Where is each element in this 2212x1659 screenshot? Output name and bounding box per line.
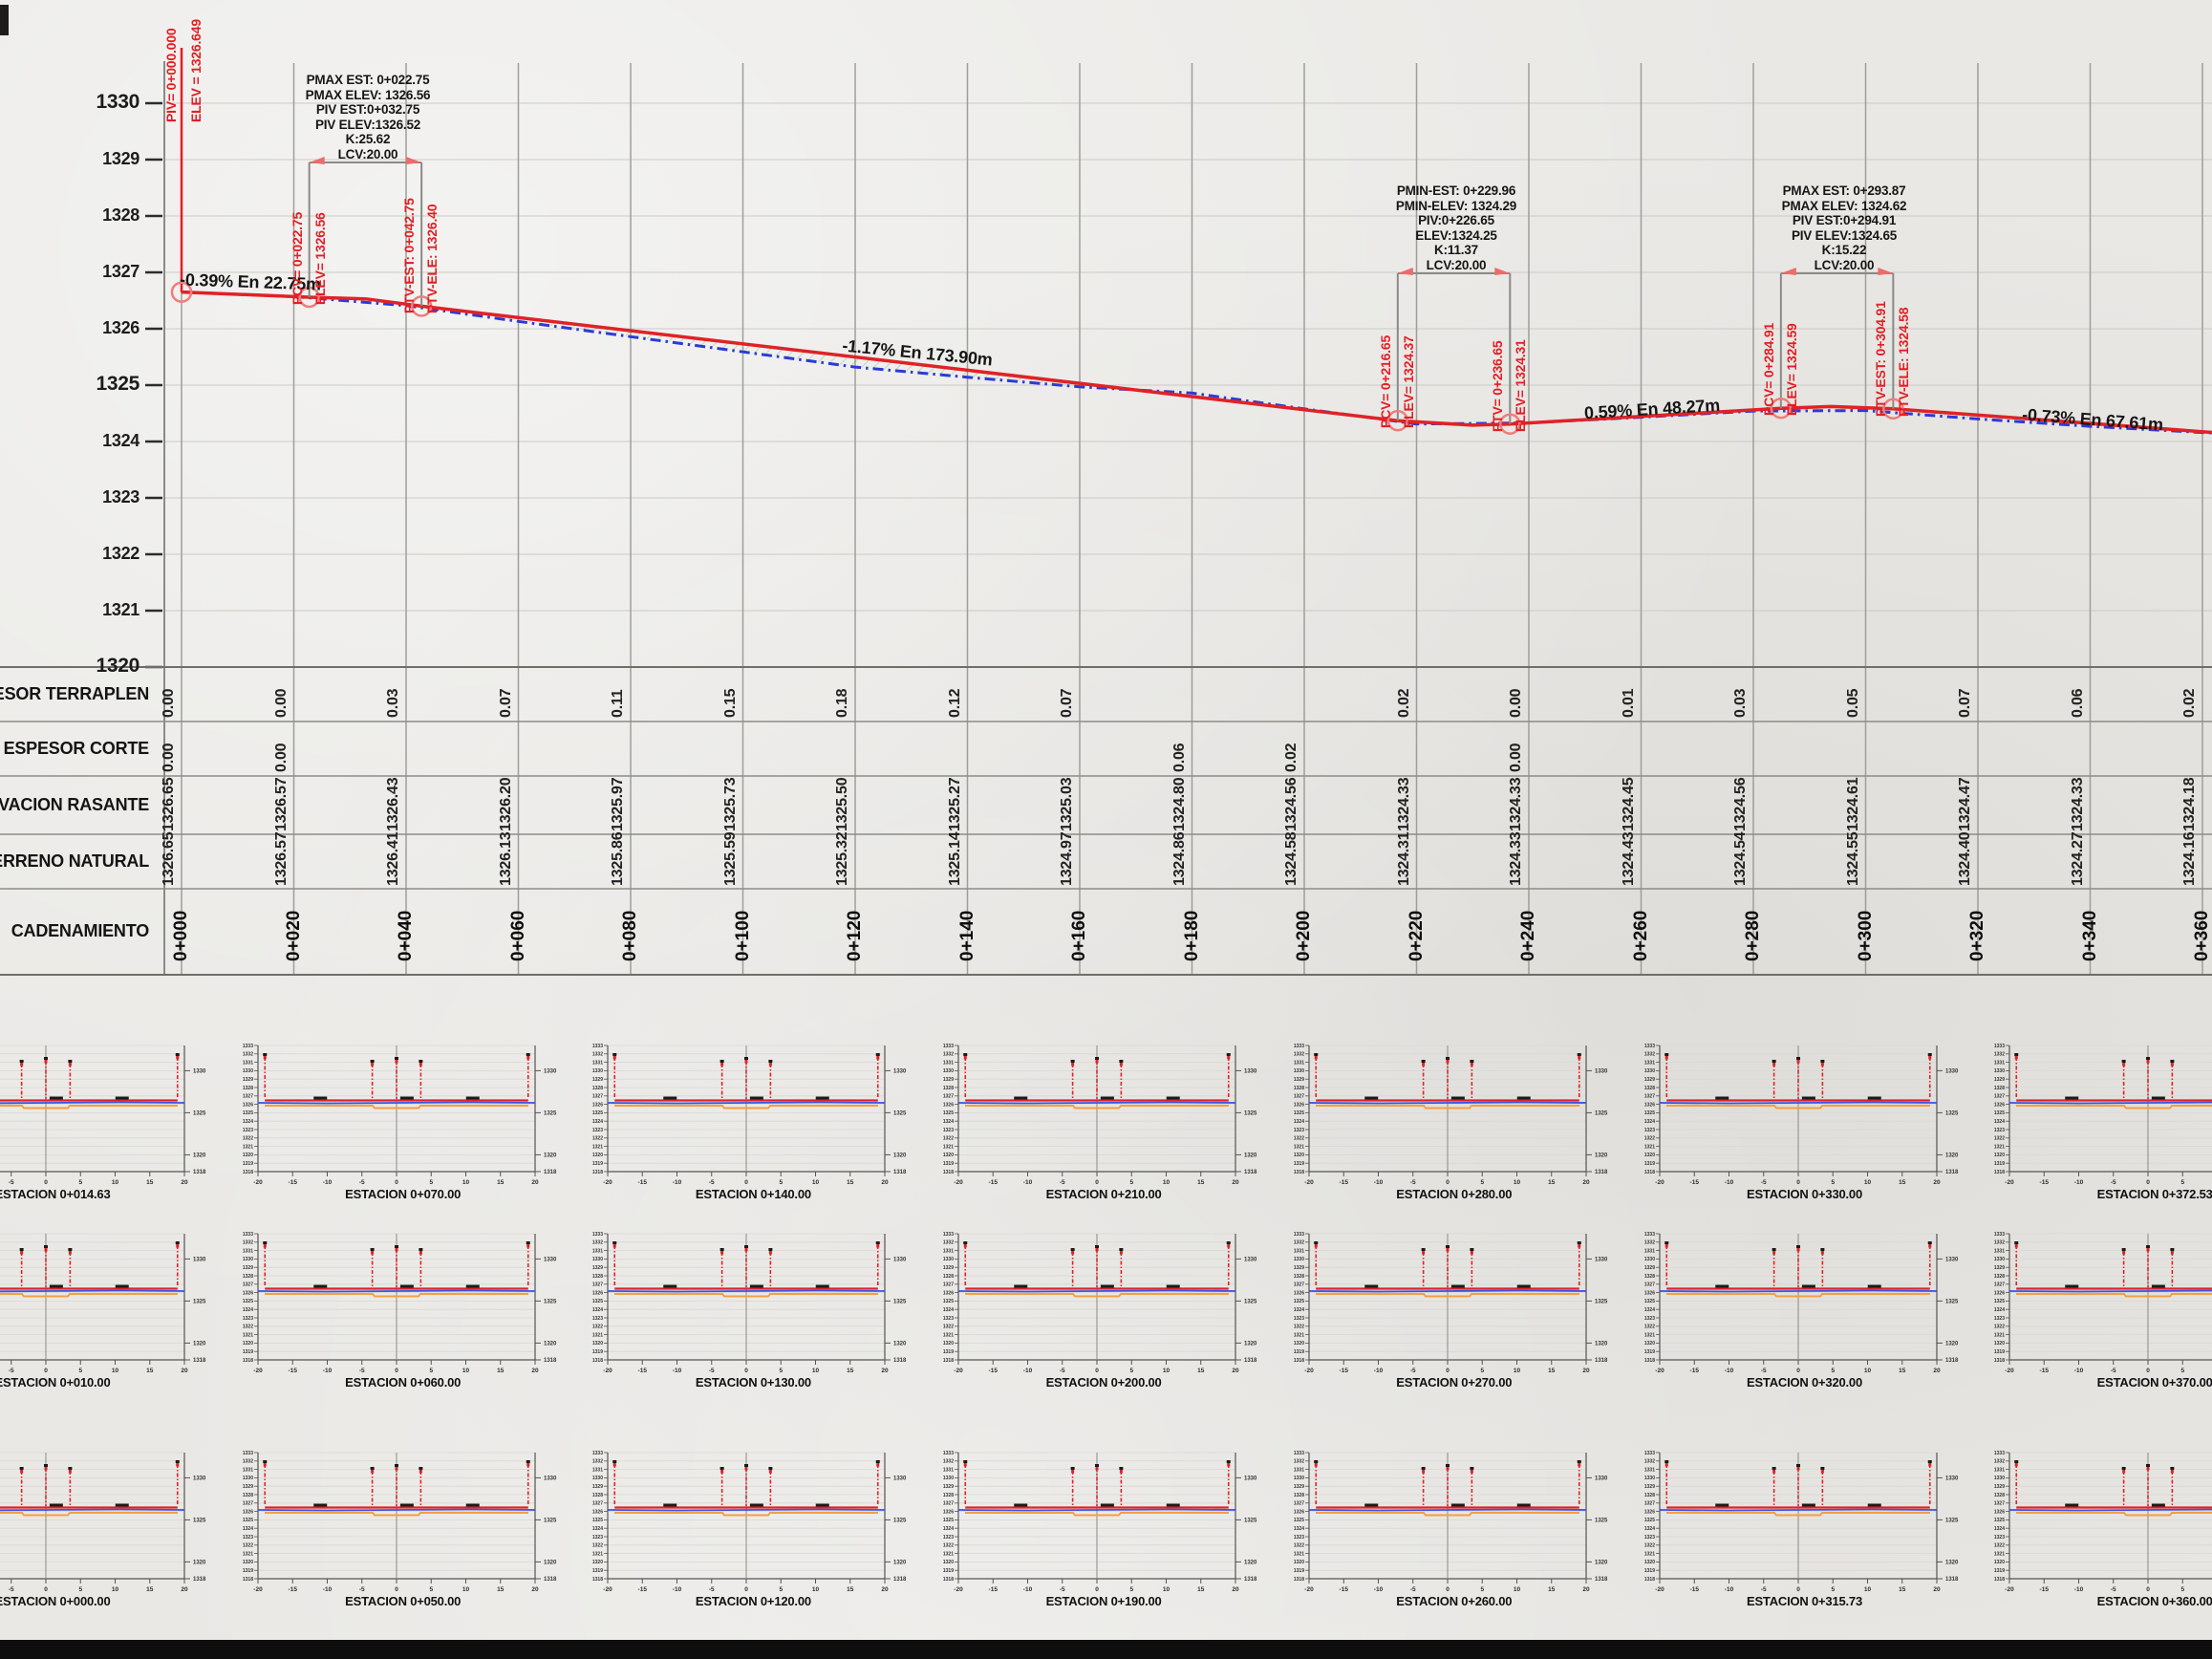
section-y-left-label: 1332 xyxy=(592,1459,603,1465)
table-value: 1325.27 xyxy=(947,778,964,831)
spike-head-icon xyxy=(176,1056,179,1060)
section-x-tick-label: -10 xyxy=(1724,1179,1733,1186)
section-y-left-label: 1329 xyxy=(592,1077,603,1083)
spike-head-icon xyxy=(1772,1470,1775,1474)
section-y-right-label: 1318 xyxy=(1244,1170,1257,1175)
section-grade-bar xyxy=(313,1504,327,1507)
spike-head-icon xyxy=(964,1056,967,1060)
section-y-left-label: 1323 xyxy=(1994,1128,2005,1133)
section-x-tick-label: 0 xyxy=(1446,1586,1450,1593)
section-x-tick-label: 15 xyxy=(497,1586,505,1593)
section-y-right-label: 1318 xyxy=(1595,1577,1608,1583)
section-y-left-label: 1320 xyxy=(592,1153,603,1158)
section-terreno-line xyxy=(0,1103,184,1104)
table-value: 1324.16 xyxy=(2181,832,2199,886)
section-terreno-line xyxy=(958,1291,1235,1292)
spike-head-icon xyxy=(1927,1460,1931,1463)
section-y-left-label: 1319 xyxy=(592,1349,603,1355)
section-y-left-label: 1333 xyxy=(1994,1044,2005,1049)
section-y-right-label: 1325 xyxy=(1595,1111,1608,1117)
section-y-left-label: 1333 xyxy=(592,1044,603,1049)
section-y-left-label: 1331 xyxy=(1294,1467,1304,1473)
cross-section: 1333133213311330132913281327132613251324… xyxy=(0,1226,215,1394)
section-y-left-label: 1327 xyxy=(1994,1282,2005,1288)
table-value: 1324.56 xyxy=(1283,778,1300,831)
section-y-left-label: 1325 xyxy=(1643,1110,1654,1116)
section-y-left-label: 1322 xyxy=(1294,1136,1304,1142)
annotation-line: K:25.62 xyxy=(225,132,511,147)
section-x-tick-label: 5 xyxy=(1480,1368,1484,1374)
spike-head-icon xyxy=(1772,1060,1775,1063)
section-grade-bar xyxy=(1867,1097,1880,1100)
table-value: 1325.50 xyxy=(834,778,851,831)
station-label: 0+240 xyxy=(1518,911,1539,961)
table-value: 1324.27 xyxy=(2070,832,2087,886)
section-y-left-label: 1322 xyxy=(243,1325,253,1330)
spike-head-icon xyxy=(1227,1241,1231,1244)
table-value: 1324.18 xyxy=(2181,778,2199,831)
section-y-left-label: 1331 xyxy=(943,1060,954,1066)
section-x-tick-label: 0 xyxy=(395,1179,398,1186)
section-x-tick-label: -5 xyxy=(9,1368,14,1374)
section-x-tick-label: 0 xyxy=(745,1179,749,1186)
section-x-tick-label: -15 xyxy=(1689,1368,1699,1374)
section-y-left-label: 1325 xyxy=(592,1518,603,1523)
table-value: 1324.61 xyxy=(1845,778,1862,831)
section-y-left-label: 1324 xyxy=(243,1307,253,1313)
section-title: ESTACION 0+320.00 xyxy=(1643,1375,1967,1390)
section-y-left-label: 1325 xyxy=(1294,1518,1304,1523)
spike-head-icon xyxy=(2171,1467,2175,1470)
section-y-left-label: 1322 xyxy=(943,1543,954,1549)
section-grade-bar xyxy=(1801,1097,1815,1100)
section-title: ESTACION 0+270.00 xyxy=(1292,1375,1617,1390)
section-y-right-label: 1325 xyxy=(1244,1300,1257,1305)
section-title: ESTACION 0+372.53 xyxy=(1992,1187,2212,1201)
section-grade-bar xyxy=(400,1097,414,1100)
section-y-left-label: 1332 xyxy=(1643,1052,1654,1058)
spike-head-icon xyxy=(1446,1467,1449,1471)
spike-head-icon xyxy=(45,1467,48,1471)
table-value: 0.15 xyxy=(722,689,740,718)
spike-head-icon xyxy=(263,1241,267,1244)
section-x-tick-label: -10 xyxy=(1724,1368,1733,1374)
section-grade-bar xyxy=(50,1285,63,1288)
section-y-left-label: 1320 xyxy=(943,1341,954,1347)
section-y-left-label: 1333 xyxy=(1994,1451,2005,1456)
section-y-left-label: 1329 xyxy=(1294,1484,1304,1490)
table-value: 1325.97 xyxy=(610,778,627,831)
section-y-left-label: 1329 xyxy=(592,1265,603,1271)
station-label: 0+020 xyxy=(284,911,305,961)
annotation-line: PMIN-EST: 0+229.96 xyxy=(1313,183,1600,199)
section-x-tick-label: 15 xyxy=(146,1586,154,1593)
section-y-left-label: 1325 xyxy=(1994,1299,2005,1304)
section-y-left-label: 1321 xyxy=(592,1332,603,1338)
section-y-right-label: 1320 xyxy=(893,1561,907,1566)
section-y-left-label: 1324 xyxy=(943,1526,954,1532)
section-y-left-label: 1332 xyxy=(1294,1052,1304,1058)
section-y-right-label: 1330 xyxy=(893,1258,907,1263)
ptv-label-line1: PTV-EST: 0+304.91 xyxy=(1873,301,1888,417)
section-subrasante-line xyxy=(0,1513,178,1516)
section-y-left-label: 1328 xyxy=(943,1086,954,1091)
station-label: 0+200 xyxy=(1294,911,1315,961)
cross-section-chart: 1333133213311330132913281327132613251324… xyxy=(241,1038,566,1187)
spike-head-icon xyxy=(1772,1467,1775,1470)
section-y-left-label: 1327 xyxy=(1294,1501,1304,1507)
section-y-left-label: 1331 xyxy=(1294,1248,1304,1254)
table-value: 0.03 xyxy=(1732,689,1750,718)
spike-head-icon xyxy=(769,1467,773,1470)
section-y-left-label: 1327 xyxy=(1643,1501,1654,1507)
section-y-left-label: 1331 xyxy=(592,1248,603,1254)
spike-head-icon xyxy=(2015,1244,2018,1248)
annotation-line: PMAX ELEV: 1326.56 xyxy=(225,88,511,103)
section-x-tick-label: 20 xyxy=(1582,1368,1590,1374)
spike-head-icon xyxy=(263,1463,266,1467)
section-y-right-label: 1330 xyxy=(1945,1069,1959,1075)
spike-head-icon xyxy=(1928,1056,1931,1060)
section-y-left-label: 1328 xyxy=(1643,1086,1654,1091)
section-y-left-label: 1326 xyxy=(1294,1290,1304,1296)
spike-head-icon xyxy=(2146,1057,2150,1060)
spike-head-icon xyxy=(1927,1053,1931,1056)
station-label: 0+100 xyxy=(733,911,754,961)
table-value: 1324.56 xyxy=(1732,778,1750,831)
spike-head-icon xyxy=(769,1248,773,1251)
section-grade-bar xyxy=(750,1097,763,1100)
section-y-left-label: 1330 xyxy=(1643,1257,1654,1262)
section-y-left-label: 1321 xyxy=(1294,1551,1304,1557)
annotation-line: LCV:20.00 xyxy=(1701,258,1987,273)
section-y-right-label: 1318 xyxy=(193,1358,206,1364)
annotation-line: PIV:0+226.65 xyxy=(1313,213,1600,228)
spike-head-icon xyxy=(2146,1464,2150,1467)
spike-head-icon xyxy=(1664,1244,1667,1248)
section-y-right-label: 1330 xyxy=(893,1476,907,1482)
section-x-tick-label: 0 xyxy=(1796,1179,1800,1186)
section-x-tick-label: 5 xyxy=(429,1586,433,1593)
section-x-tick-label: -10 xyxy=(322,1586,332,1593)
section-y-right-label: 1330 xyxy=(193,1258,206,1263)
spike-head-icon xyxy=(68,1248,72,1251)
section-x-tick-label: 15 xyxy=(1197,1586,1205,1593)
section-y-left-label: 1321 xyxy=(1994,1144,2005,1150)
spike-head-icon xyxy=(395,1245,398,1248)
ptv-label-line2: PTV-ELE: 1326.40 xyxy=(424,205,440,313)
section-y-left-label: 1322 xyxy=(1294,1543,1304,1549)
spike-head-icon xyxy=(1071,1251,1074,1255)
section-x-tick-label: -15 xyxy=(1689,1179,1699,1186)
section-grade-bar xyxy=(816,1504,829,1507)
spike-head-icon xyxy=(526,1244,529,1248)
spike-head-icon xyxy=(419,1467,422,1470)
spike-head-icon xyxy=(371,1470,374,1474)
section-x-tick-label: 15 xyxy=(848,1586,855,1593)
section-y-left-label: 1322 xyxy=(592,1543,603,1549)
station-label: 0+220 xyxy=(1407,911,1428,961)
annotation-line: PMAX EST: 0+293.87 xyxy=(1701,183,1987,199)
section-x-tick-label: 0 xyxy=(395,1368,398,1374)
spike-head-icon xyxy=(44,1464,48,1467)
section-grade-bar xyxy=(2152,1285,2165,1288)
section-y-right-label: 1330 xyxy=(1945,1476,1959,1482)
spike-head-icon xyxy=(1314,1241,1318,1244)
section-title: ESTACION 0+280.00 xyxy=(1292,1187,1617,1201)
section-y-left-label: 1322 xyxy=(1294,1325,1304,1330)
spike-head-icon xyxy=(20,1470,23,1474)
spike-head-icon xyxy=(2146,1245,2150,1248)
section-y-left-label: 1326 xyxy=(1643,1102,1654,1108)
section-title: ESTACION 0+050.00 xyxy=(241,1594,566,1608)
section-grade-bar xyxy=(2065,1285,2078,1288)
section-y-left-label: 1324 xyxy=(1643,1307,1654,1313)
section-terreno-line xyxy=(258,1103,535,1104)
section-y-left-label: 1328 xyxy=(592,1086,603,1091)
spike-head-icon xyxy=(2171,1470,2174,1474)
spike-head-icon xyxy=(2122,1467,2126,1470)
pcv-label-line2: ELEV= 1324.37 xyxy=(1401,336,1416,429)
section-y-left-label: 1323 xyxy=(1643,1316,1654,1322)
spike-head-icon xyxy=(68,1060,72,1063)
section-y-left-label: 1327 xyxy=(592,1282,603,1288)
spike-head-icon xyxy=(69,1470,72,1474)
section-y-right-label: 1320 xyxy=(1945,1561,1959,1566)
spike-head-icon xyxy=(877,1463,880,1467)
section-y-left-label: 1330 xyxy=(1294,1068,1304,1074)
vertical-curve-annotation: PMAX EST: 0+022.75PMAX ELEV: 1326.56PIV … xyxy=(225,73,511,162)
section-grade-bar xyxy=(1451,1285,1465,1288)
section-x-tick-label: 15 xyxy=(1899,1179,1906,1186)
table-value: 1325.86 xyxy=(610,832,627,886)
spike-head-icon xyxy=(876,1053,880,1056)
spike-head-icon xyxy=(2171,1060,2175,1063)
section-y-left-label: 1328 xyxy=(243,1493,253,1498)
section-y-left-label: 1318 xyxy=(943,1577,954,1583)
section-y-left-label: 1332 xyxy=(592,1240,603,1246)
section-y-left-label: 1331 xyxy=(592,1467,603,1473)
spike-head-icon xyxy=(613,1053,617,1056)
section-y-left-label: 1329 xyxy=(243,1077,253,1083)
spike-head-icon xyxy=(2015,1463,2018,1467)
spike-head-icon xyxy=(69,1063,72,1066)
table-value: 0.00 xyxy=(1508,689,1525,718)
section-y-left-label: 1320 xyxy=(1643,1560,1654,1565)
spike-head-icon xyxy=(1421,1467,1425,1470)
spike-head-icon xyxy=(1820,1063,1823,1066)
spike-head-icon xyxy=(1578,1241,1581,1244)
station-label: 0+080 xyxy=(620,911,641,961)
section-y-right-label: 1320 xyxy=(893,1153,907,1159)
section-y-left-label: 1328 xyxy=(1294,1274,1304,1280)
table-value: 0.18 xyxy=(834,689,851,718)
section-x-tick-label: -20 xyxy=(1655,1586,1664,1593)
section-title: ESTACION 0+360.00 xyxy=(1992,1594,2212,1608)
section-y-left-label: 1319 xyxy=(592,1568,603,1574)
section-y-left-label: 1322 xyxy=(1994,1136,2005,1142)
section-x-tick-label: -20 xyxy=(1655,1368,1664,1374)
spike-head-icon xyxy=(613,1244,616,1248)
cross-section: 1333133213311330132913281327132613251324… xyxy=(1292,1445,1617,1613)
section-y-left-label: 1319 xyxy=(1994,1568,2005,1574)
section-y-left-label: 1333 xyxy=(943,1232,954,1238)
section-y-left-label: 1320 xyxy=(243,1153,253,1158)
section-y-left-label: 1332 xyxy=(943,1052,954,1058)
piv-station-label: PIV= 0+000.000 xyxy=(163,29,179,122)
annotation-line: ELEV:1324.25 xyxy=(1313,228,1600,244)
section-grade-bar xyxy=(2065,1097,2078,1100)
spike-head-icon xyxy=(1421,1060,1425,1063)
spike-head-icon xyxy=(419,1063,422,1066)
spike-head-icon xyxy=(720,1060,724,1063)
cross-section-chart: 1333133213311330132913281327132613251324… xyxy=(241,1445,566,1594)
section-grade-bar xyxy=(2152,1504,2165,1507)
spike-head-icon xyxy=(20,1467,24,1470)
sheet-bottom-bar xyxy=(0,1640,2212,1659)
spike-head-icon xyxy=(1664,1463,1667,1467)
spike-head-icon xyxy=(2122,1470,2125,1474)
section-y-right-label: 1320 xyxy=(1244,1153,1257,1159)
section-x-tick-label: 15 xyxy=(1899,1368,1906,1374)
ptv-label-line1: PTV= 0+236.65 xyxy=(1490,340,1505,431)
table-value: 1326.57 xyxy=(273,778,290,831)
section-x-tick-label: -5 xyxy=(1410,1368,1416,1374)
spike-head-icon xyxy=(176,1460,180,1463)
cross-section: 1333133213311330132913281327132613251324… xyxy=(241,1445,566,1613)
annotation-line: LCV:20.00 xyxy=(225,147,511,162)
section-y-right-label: 1330 xyxy=(1945,1258,1959,1263)
section-y-left-label: 1329 xyxy=(1643,1265,1654,1271)
section-x-tick-label: -5 xyxy=(1060,1179,1065,1186)
section-x-tick-label: -5 xyxy=(1060,1586,1065,1593)
annotation-line: LCV:20.00 xyxy=(1313,258,1600,273)
annotation-line: PIV ELEV:1326.52 xyxy=(225,118,511,133)
station-label: 0+300 xyxy=(1856,911,1877,961)
section-y-left-label: 1326 xyxy=(592,1290,603,1296)
section-terreno-line xyxy=(258,1510,535,1511)
section-y-left-label: 1327 xyxy=(1294,1282,1304,1288)
section-grade-bar xyxy=(1867,1285,1880,1288)
section-y-right-label: 1320 xyxy=(1945,1342,1959,1347)
section-y-right-label: 1325 xyxy=(893,1111,907,1117)
section-y-left-label: 1329 xyxy=(243,1484,253,1490)
section-y-left-label: 1323 xyxy=(1994,1535,2005,1540)
section-y-right-label: 1330 xyxy=(193,1476,206,1482)
section-y-left-label: 1333 xyxy=(592,1232,603,1238)
annotation-line: PIV EST:0+294.91 xyxy=(1701,213,1987,228)
section-x-tick-label: -5 xyxy=(9,1586,14,1593)
spike-head-icon xyxy=(1071,1060,1075,1063)
section-x-tick-label: -5 xyxy=(1410,1179,1416,1186)
section-terreno-line xyxy=(958,1103,1235,1104)
section-grade-bar xyxy=(664,1097,677,1100)
spike-head-icon xyxy=(526,1463,529,1467)
spike-head-icon xyxy=(2122,1063,2125,1066)
spike-head-icon xyxy=(395,1057,398,1060)
spike-head-icon xyxy=(1471,1251,1473,1255)
section-y-left-label: 1333 xyxy=(1643,1232,1654,1238)
section-x-tick-label: -5 xyxy=(359,1368,365,1374)
cross-section-chart: 1333133213311330132913281327132613251324… xyxy=(1992,1226,2212,1375)
section-y-left-label: 1328 xyxy=(943,1493,954,1498)
section-y-left-label: 1323 xyxy=(1294,1316,1304,1322)
spike-head-icon xyxy=(2014,1053,2018,1056)
section-y-right-label: 1320 xyxy=(1595,1153,1608,1159)
section-y-left-label: 1318 xyxy=(1994,1170,2005,1175)
ptv-label-line1: PTV-EST: 0+042.75 xyxy=(401,199,417,314)
section-y-left-label: 1321 xyxy=(1643,1332,1654,1338)
section-terreno-line xyxy=(1309,1291,1586,1292)
cross-section: 1333133213311330132913281327132613251324… xyxy=(1992,1445,2212,1613)
spike-head-icon xyxy=(371,1251,374,1255)
section-y-right-label: 1330 xyxy=(1244,1258,1257,1263)
section-y-right-label: 1325 xyxy=(544,1111,557,1117)
section-x-tick-label: -10 xyxy=(1374,1179,1384,1186)
section-y-left-label: 1333 xyxy=(943,1451,954,1456)
section-y-left-label: 1323 xyxy=(592,1316,603,1322)
section-title: ESTACION 0+370.00 xyxy=(1992,1375,2212,1390)
section-subrasante-line xyxy=(0,1294,178,1297)
section-y-left-label: 1318 xyxy=(1994,1358,2005,1364)
section-y-left-label: 1319 xyxy=(243,1349,253,1355)
table-value: 0.02 xyxy=(2181,689,2199,718)
section-x-tick-label: 20 xyxy=(1582,1586,1590,1593)
section-y-left-label: 1329 xyxy=(1643,1484,1654,1490)
spike-head-icon xyxy=(20,1251,23,1255)
spike-head-icon xyxy=(370,1467,374,1470)
section-x-tick-label: -15 xyxy=(1339,1179,1348,1186)
station-label: 0+180 xyxy=(1182,911,1203,961)
spike-head-icon xyxy=(395,1060,397,1064)
spike-head-icon xyxy=(1446,1245,1450,1248)
section-y-left-label: 1328 xyxy=(243,1086,253,1091)
table-value: 1324.45 xyxy=(1621,778,1638,831)
section-y-left-label: 1329 xyxy=(1294,1265,1304,1271)
section-x-tick-label: 10 xyxy=(1163,1586,1170,1593)
cross-section-chart: 1333133213311330132913281327132613251324… xyxy=(1992,1445,2212,1594)
elevation-axis-label: 1320 xyxy=(82,655,140,678)
section-y-right-label: 1318 xyxy=(893,1358,907,1364)
section-x-tick-label: -10 xyxy=(322,1179,332,1186)
section-x-tick-label: 15 xyxy=(1197,1179,1205,1186)
section-y-left-label: 1321 xyxy=(592,1144,603,1150)
section-grade-bar xyxy=(664,1285,677,1288)
section-terreno-line xyxy=(958,1510,1235,1511)
section-x-tick-label: 0 xyxy=(1095,1368,1099,1374)
spike-head-icon xyxy=(1796,1245,1800,1248)
section-x-tick-label: -5 xyxy=(359,1586,365,1593)
spike-head-icon xyxy=(2014,1460,2018,1463)
section-x-tick-label: 20 xyxy=(1933,1179,1941,1186)
section-x-tick-label: 5 xyxy=(78,1586,82,1593)
spike-head-icon xyxy=(877,1244,880,1248)
section-y-left-label: 1325 xyxy=(243,1518,253,1523)
section-grade-bar xyxy=(50,1504,63,1507)
section-y-right-label: 1320 xyxy=(544,1561,557,1566)
section-y-left-label: 1320 xyxy=(1294,1341,1304,1347)
section-y-left-label: 1326 xyxy=(243,1102,253,1108)
section-grade-bar xyxy=(465,1097,479,1100)
ptv-label-line2: ELEV= 1324.31 xyxy=(1513,339,1528,432)
section-y-right-label: 1330 xyxy=(193,1069,206,1075)
spike-head-icon xyxy=(1664,1241,1668,1244)
section-x-tick-label: -15 xyxy=(1339,1586,1348,1593)
section-y-left-label: 1323 xyxy=(1643,1128,1654,1133)
section-grade-bar xyxy=(1715,1097,1729,1100)
section-y-right-label: 1330 xyxy=(544,1476,557,1482)
section-y-left-label: 1319 xyxy=(1994,1161,2005,1167)
